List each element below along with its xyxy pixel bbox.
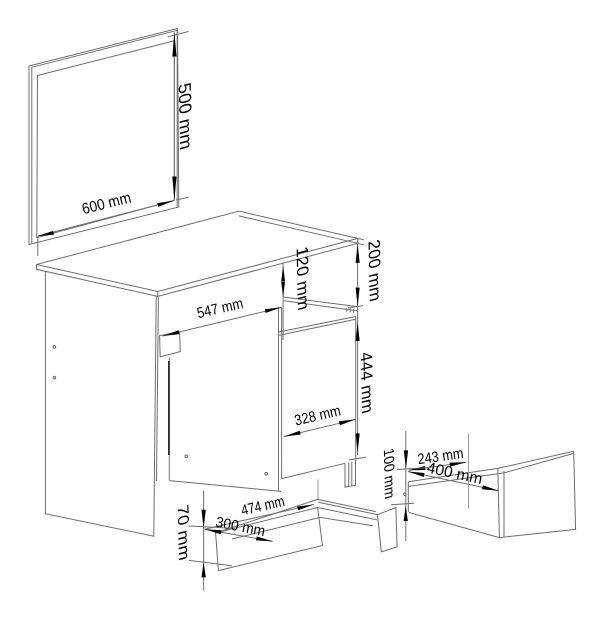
svg-text:200 mm: 200 mm (365, 238, 385, 304)
svg-text:120 mm: 120 mm (293, 245, 313, 313)
svg-text:100 mm: 100 mm (380, 447, 397, 501)
svg-text:70 mm: 70 mm (174, 503, 192, 562)
svg-text:500 mm: 500 mm (175, 81, 196, 152)
svg-text:444 mm: 444 mm (357, 350, 377, 416)
